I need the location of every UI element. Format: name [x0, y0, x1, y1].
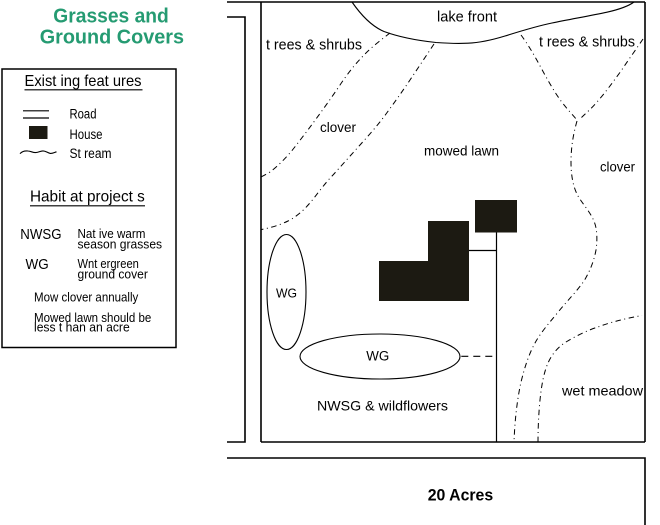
- svg-text:Grasses and: Grasses and: [53, 6, 169, 28]
- svg-text:St ream: St ream: [70, 146, 112, 161]
- svg-text:20 Acres: 20 Acres: [428, 486, 494, 505]
- svg-text:t rees & shrubs: t rees & shrubs: [266, 37, 362, 54]
- svg-text:Ground Covers: Ground Covers: [40, 27, 184, 49]
- svg-text:lake front: lake front: [437, 9, 498, 26]
- svg-text:clover: clover: [600, 159, 635, 175]
- svg-text:WG: WG: [366, 349, 389, 364]
- svg-text:less t han an acre: less t han an acre: [34, 319, 130, 334]
- svg-text:House: House: [70, 127, 103, 142]
- svg-text:NWSG & wildflowers: NWSG & wildflowers: [317, 398, 448, 414]
- svg-text:t rees & shrubs: t rees & shrubs: [539, 34, 635, 51]
- svg-text:NWSG: NWSG: [20, 227, 61, 243]
- svg-text:mowed lawn: mowed lawn: [424, 142, 499, 158]
- svg-text:Mow clover annually: Mow clover annually: [34, 290, 139, 305]
- svg-text:clover: clover: [320, 119, 356, 135]
- svg-text:WG: WG: [26, 257, 49, 273]
- svg-text:season grasses: season grasses: [78, 236, 163, 251]
- svg-text:Road: Road: [70, 107, 97, 122]
- svg-text:Habit at project s: Habit at project s: [30, 189, 145, 206]
- svg-text:WG: WG: [276, 286, 297, 301]
- svg-text:ground cover: ground cover: [78, 266, 149, 281]
- svg-text:Exist ing feat ures: Exist ing feat ures: [25, 73, 142, 90]
- svg-text:wet meadow: wet meadow: [561, 382, 644, 398]
